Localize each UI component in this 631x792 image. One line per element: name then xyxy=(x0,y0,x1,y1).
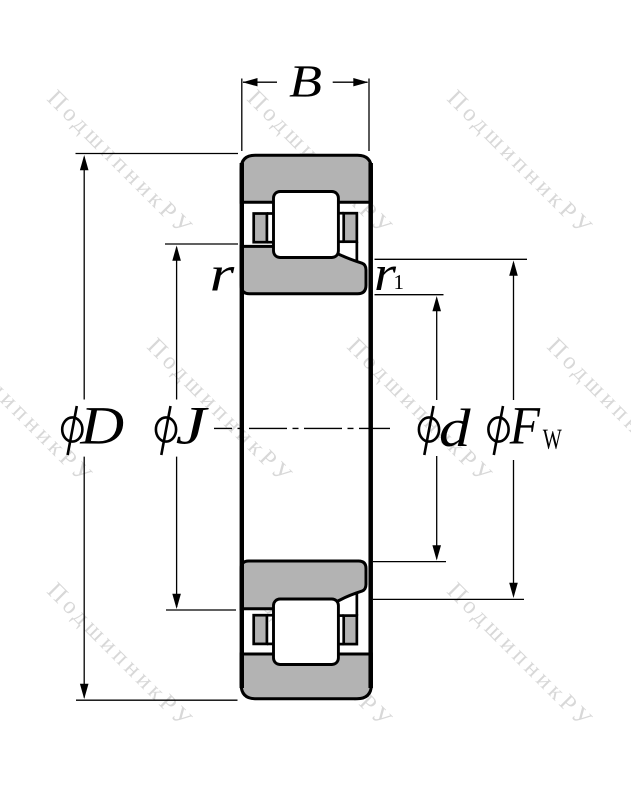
svg-text:B: B xyxy=(289,56,322,107)
svg-text:1: 1 xyxy=(393,270,404,294)
svg-text:d: d xyxy=(439,398,472,458)
svg-text:r: r xyxy=(210,246,235,302)
svg-text:D: D xyxy=(79,395,124,455)
svg-text:W: W xyxy=(543,424,562,456)
svg-text:F: F xyxy=(509,395,541,455)
svg-text:J: J xyxy=(176,396,209,455)
